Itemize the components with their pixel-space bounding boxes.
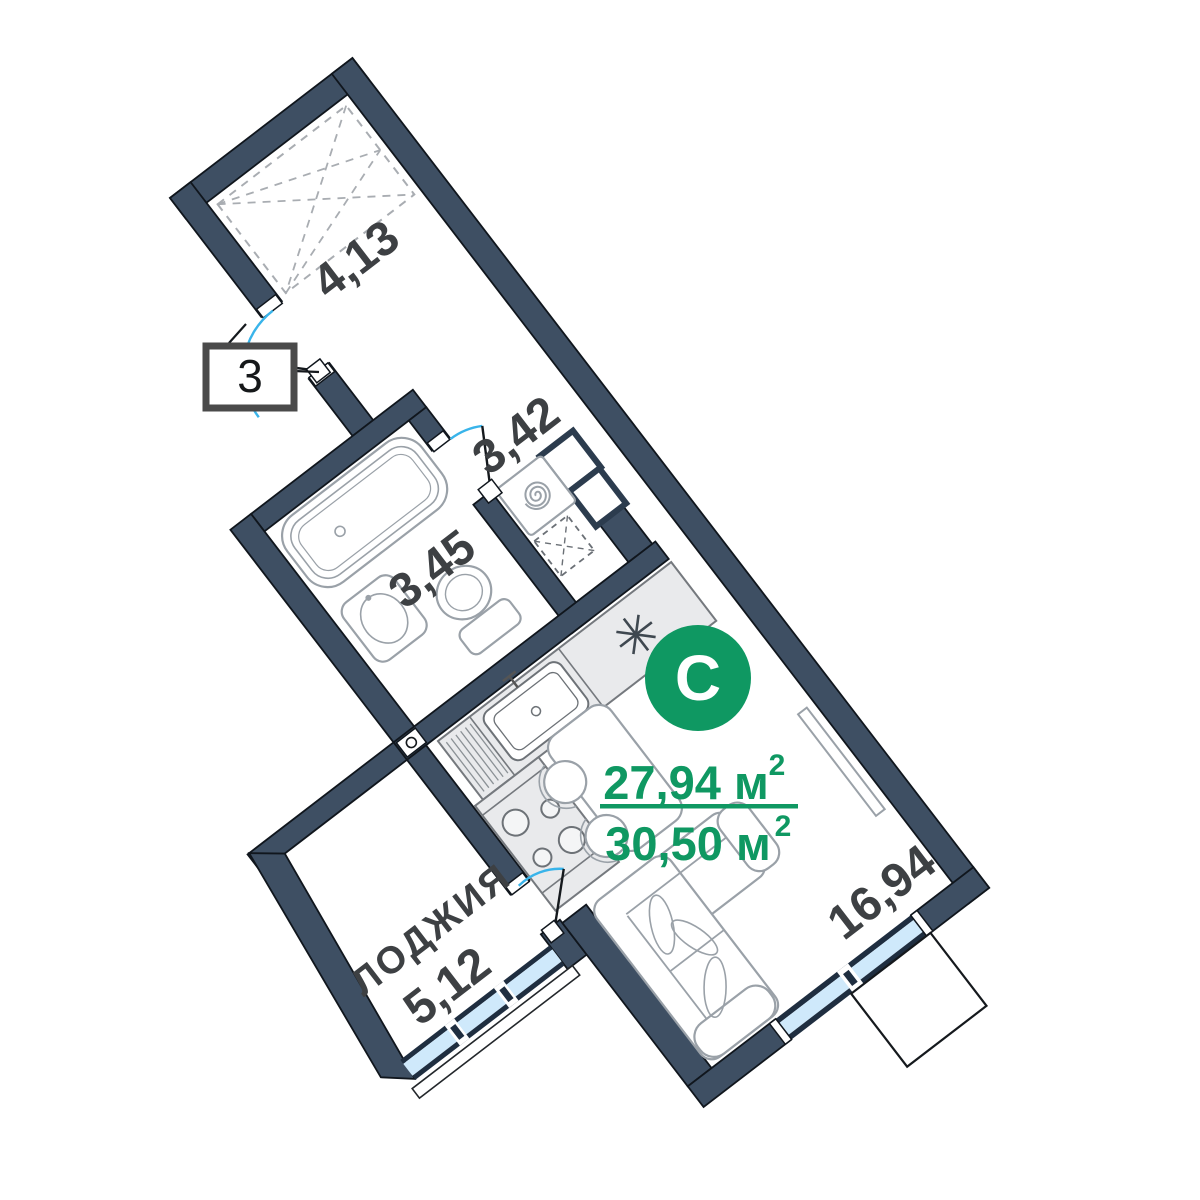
room-label-hall: 4,13 — [303, 210, 409, 309]
badge-number: 3 — [237, 350, 263, 402]
badge-connector-line — [229, 324, 246, 343]
plan-rotated-group: 4,13 3,42 3,45 ЛОДЖИЯ 5,12 16,94 — [0, 58, 1045, 1200]
living-area-value: 27,94 м — [603, 756, 768, 809]
badge-connector-line — [294, 371, 319, 372]
total-area-sup: 2 — [775, 810, 792, 843]
living-area-sup: 2 — [769, 749, 786, 782]
wall-loggia-top — [248, 742, 407, 871]
type-letter: С — [675, 642, 721, 714]
floor-plan-svg: 4,13 3,42 3,45 ЛОДЖИЯ 5,12 16,94 3 С 27,… — [0, 0, 1200, 1200]
floor-plan-page: 4,13 3,42 3,45 ЛОДЖИЯ 5,12 16,94 3 С 27,… — [0, 0, 1200, 1200]
area-divider-line — [600, 804, 798, 809]
entrance-badge: 3 — [206, 324, 319, 408]
total-area-value: 30,50 м — [605, 817, 770, 870]
